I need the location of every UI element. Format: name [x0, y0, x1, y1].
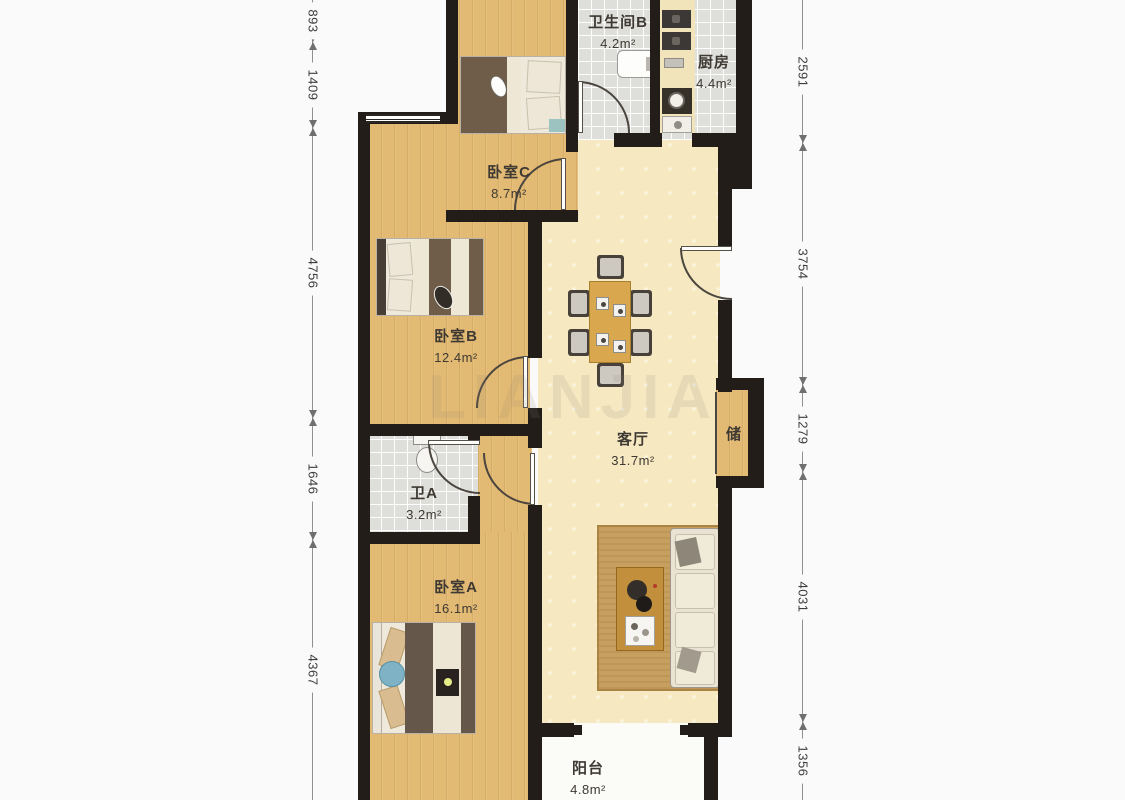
chair-seat [633, 293, 649, 314]
plate-icon [613, 340, 626, 353]
dimension-label: 1279 [795, 406, 810, 451]
door-leaf [561, 158, 566, 210]
sink-counter [662, 116, 692, 133]
bed-icon-bedroom-b [376, 238, 484, 316]
faucet-dot [674, 121, 682, 129]
wall-bathrooma-bottom [370, 532, 480, 544]
dimension-label: 4756 [305, 251, 320, 296]
plate-dot [601, 338, 606, 343]
room-name: 卧室B [434, 325, 478, 346]
dining-chair [630, 329, 652, 356]
bed-icon-bedroom-c [460, 56, 566, 134]
wall-segment [566, 133, 578, 147]
room-label-balcony: 阳台 4.8m² [570, 757, 606, 797]
dimension-arrow [799, 377, 807, 385]
door-leaf [530, 453, 535, 505]
cooktop-icon [662, 10, 691, 28]
dimension-arrow [309, 120, 317, 128]
wall-right-lower [718, 488, 732, 723]
room-area: 8.7m² [487, 186, 531, 201]
door-jamb [574, 725, 582, 735]
plate-icon [613, 304, 626, 317]
room-area: 3.2m² [406, 507, 442, 522]
sofa-cushion [675, 573, 715, 609]
dimension-arrow [799, 143, 807, 151]
dimension-arrow [309, 532, 317, 540]
dimension-label: 4367 [305, 648, 320, 693]
dimension-arrow [309, 410, 317, 418]
dimension-left-893: 893 [312, 0, 313, 42]
watermark: LIANJIA [428, 362, 718, 433]
wall-bedroom-c-bottom [446, 210, 578, 222]
dining-chair [568, 329, 590, 356]
dimension-arrow [799, 135, 807, 143]
door-leaf [681, 246, 732, 251]
room-label-bedroom-a: 卧室A 16.1m² [434, 576, 478, 616]
sofa-cushion [675, 612, 715, 648]
wall-right-upper [718, 147, 732, 248]
room-label-bedroom-b: 卧室B 12.4m² [434, 325, 478, 365]
dimension-right-1356: 1356 [802, 722, 803, 800]
wall-bathroomb-kitchen [650, 0, 660, 140]
bed-throw [549, 119, 565, 132]
wall-bedroom-c-right [566, 0, 578, 152]
dimension-arrow [309, 128, 317, 136]
room-area: 4.4m² [696, 76, 732, 91]
bed-headboard [377, 239, 386, 315]
cooktop-icon [662, 32, 691, 50]
wall-kitchen-right [736, 0, 752, 150]
room-name: 卫A [406, 482, 442, 503]
dimension-right-3754: 3754 [802, 143, 803, 385]
dimension-label: 2591 [795, 49, 810, 94]
wall-bedroom-c-left [446, 0, 458, 124]
dimension-left-4367: 4367 [312, 540, 313, 800]
bed-pillow [387, 278, 413, 312]
bed-pillow [526, 60, 562, 94]
bed-sheet-band [413, 239, 429, 315]
wall-central-lower [528, 505, 542, 800]
door-leaf [428, 440, 480, 445]
sofa-icon [670, 528, 720, 688]
room-label-storage: 储 [726, 423, 742, 444]
dimension-arrow [799, 464, 807, 472]
wall-balcony-side [704, 737, 718, 800]
room-area: 31.7m² [611, 453, 654, 468]
plate-icon [596, 333, 609, 346]
room-label-living-room: 客厅 31.7m² [611, 428, 654, 468]
bed-pillow [387, 242, 414, 277]
room-name: 阳台 [570, 757, 606, 778]
bed-table-icon [436, 669, 459, 696]
room-area: 4.8m² [570, 782, 606, 797]
plate-dot [618, 345, 623, 350]
wall-segment [614, 133, 662, 147]
coffee-table-icon [616, 567, 664, 651]
bed-lamp-icon [444, 678, 452, 686]
room-label-bathroom-a: 卫A 3.2m² [406, 482, 442, 522]
room-label-kitchen: 厨房 4.4m² [696, 51, 732, 91]
decor-dot [653, 584, 657, 588]
bed-icon-bedroom-a [372, 622, 476, 734]
dimension-right-4031: 4031 [802, 472, 803, 722]
wall-storage-right [748, 378, 764, 488]
room-name: 厨房 [696, 51, 732, 72]
room-label-bedroom-c: 卧室C 8.7m² [487, 161, 531, 201]
chair-seat [633, 332, 649, 353]
chair-seat [571, 332, 587, 353]
dimension-left-1409: 1409 [312, 42, 313, 128]
bed-sheet-band [507, 57, 521, 133]
plate-icon [596, 297, 609, 310]
wall-storage-bottom [716, 476, 764, 488]
burner-dot [672, 37, 680, 45]
tray-dot [631, 623, 638, 630]
wall-central-upper [528, 210, 542, 358]
plate-dot [618, 309, 623, 314]
dimension-arrow [309, 42, 317, 50]
wall-balcony-left [540, 723, 574, 737]
chair-seat [600, 258, 621, 276]
dimension-right-2591: 2591 [802, 0, 803, 143]
dimension-left-1646: 1646 [312, 418, 313, 540]
dimension-left-4756: 4756 [312, 128, 313, 418]
dining-chair [630, 290, 652, 317]
dimension-label: 4031 [795, 575, 810, 620]
plate-dot [601, 302, 606, 307]
dimension-label: 893 [305, 2, 320, 39]
sink-icon [662, 88, 692, 114]
dimension-arrow [799, 385, 807, 393]
window-bedroom-b [366, 114, 440, 123]
window-midline [366, 119, 440, 120]
dining-table-icon [589, 281, 631, 363]
room-label-bathroom-b: 卫生间B 4.2m² [588, 11, 648, 51]
dimension-arrow [309, 540, 317, 548]
dining-chair [597, 255, 624, 279]
door-leaf [578, 81, 583, 133]
room-area: 4.2m² [588, 36, 648, 51]
dimension-label: 1356 [795, 739, 810, 784]
dimension-right-1279: 1279 [802, 385, 803, 472]
dimension-arrow [799, 714, 807, 722]
room-name: 卫生间B [588, 11, 648, 32]
tray-dot [633, 636, 639, 642]
room-name: 储 [726, 423, 742, 444]
room-area: 16.1m² [434, 601, 478, 616]
dimension-label: 3754 [795, 242, 810, 287]
tray-icon [625, 616, 655, 646]
decor-bowl [636, 596, 652, 612]
counter-item [664, 58, 684, 68]
dimension-label: 1409 [305, 63, 320, 108]
dimension-arrow [799, 722, 807, 730]
room-name: 卧室A [434, 576, 478, 597]
chair-seat [571, 293, 587, 314]
sink-basin [668, 92, 685, 109]
bed-round-pillow [379, 661, 405, 687]
wall-balcony-right [688, 723, 732, 737]
wall-segment [692, 133, 752, 147]
floor-plan-page: { "page": { "watermark": "LIANJIA" }, "p… [0, 0, 1125, 800]
burner-dot [672, 15, 680, 23]
door-jamb [680, 725, 688, 735]
dimension-arrow [799, 472, 807, 480]
tray-dot [642, 629, 649, 636]
dining-chair [568, 290, 590, 317]
dimension-label: 1646 [305, 457, 320, 502]
dimension-arrow [309, 418, 317, 426]
room-name: 卧室C [487, 161, 531, 182]
bed-sheet-band [451, 239, 469, 315]
wall-left-outer [358, 112, 370, 800]
